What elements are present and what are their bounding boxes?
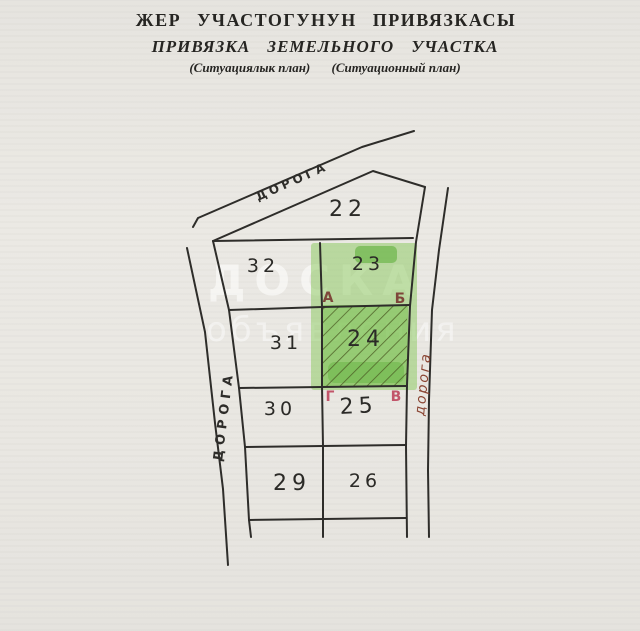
plot-24-label: 24	[347, 327, 385, 352]
plot-26-label: 26	[349, 470, 381, 492]
corner-g-label: Г	[326, 389, 335, 405]
plot-22-top-edge	[213, 171, 425, 241]
plot-32-label: 32	[247, 255, 279, 277]
plot-30-label: 30	[264, 398, 296, 420]
scanned-site-plan-page: ЖЕР УЧАСТОГУНУН ПРИВЯЗКАСЫ ПРИВЯЗКА ЗЕМЕ…	[0, 0, 640, 631]
plot-29-label: 29	[273, 471, 311, 496]
row-line-5	[249, 518, 406, 520]
site-plan-drawing: 22 32 23 31 24 30 25 29 26 А Б Г В ДОРОГ…	[0, 0, 640, 631]
corner-b-label: Б	[395, 291, 406, 307]
row-line-top	[213, 238, 413, 241]
plot-23-label: 23	[352, 253, 384, 275]
top-road-label: ДОРОГА	[254, 159, 331, 203]
plot-31-label: 31	[270, 332, 302, 354]
row-line-4	[245, 445, 406, 447]
corner-v-label: В	[391, 389, 402, 405]
plot-25-label: 25	[339, 393, 378, 420]
plot-22-label: 22	[329, 197, 367, 222]
corner-a-label: А	[323, 290, 334, 306]
